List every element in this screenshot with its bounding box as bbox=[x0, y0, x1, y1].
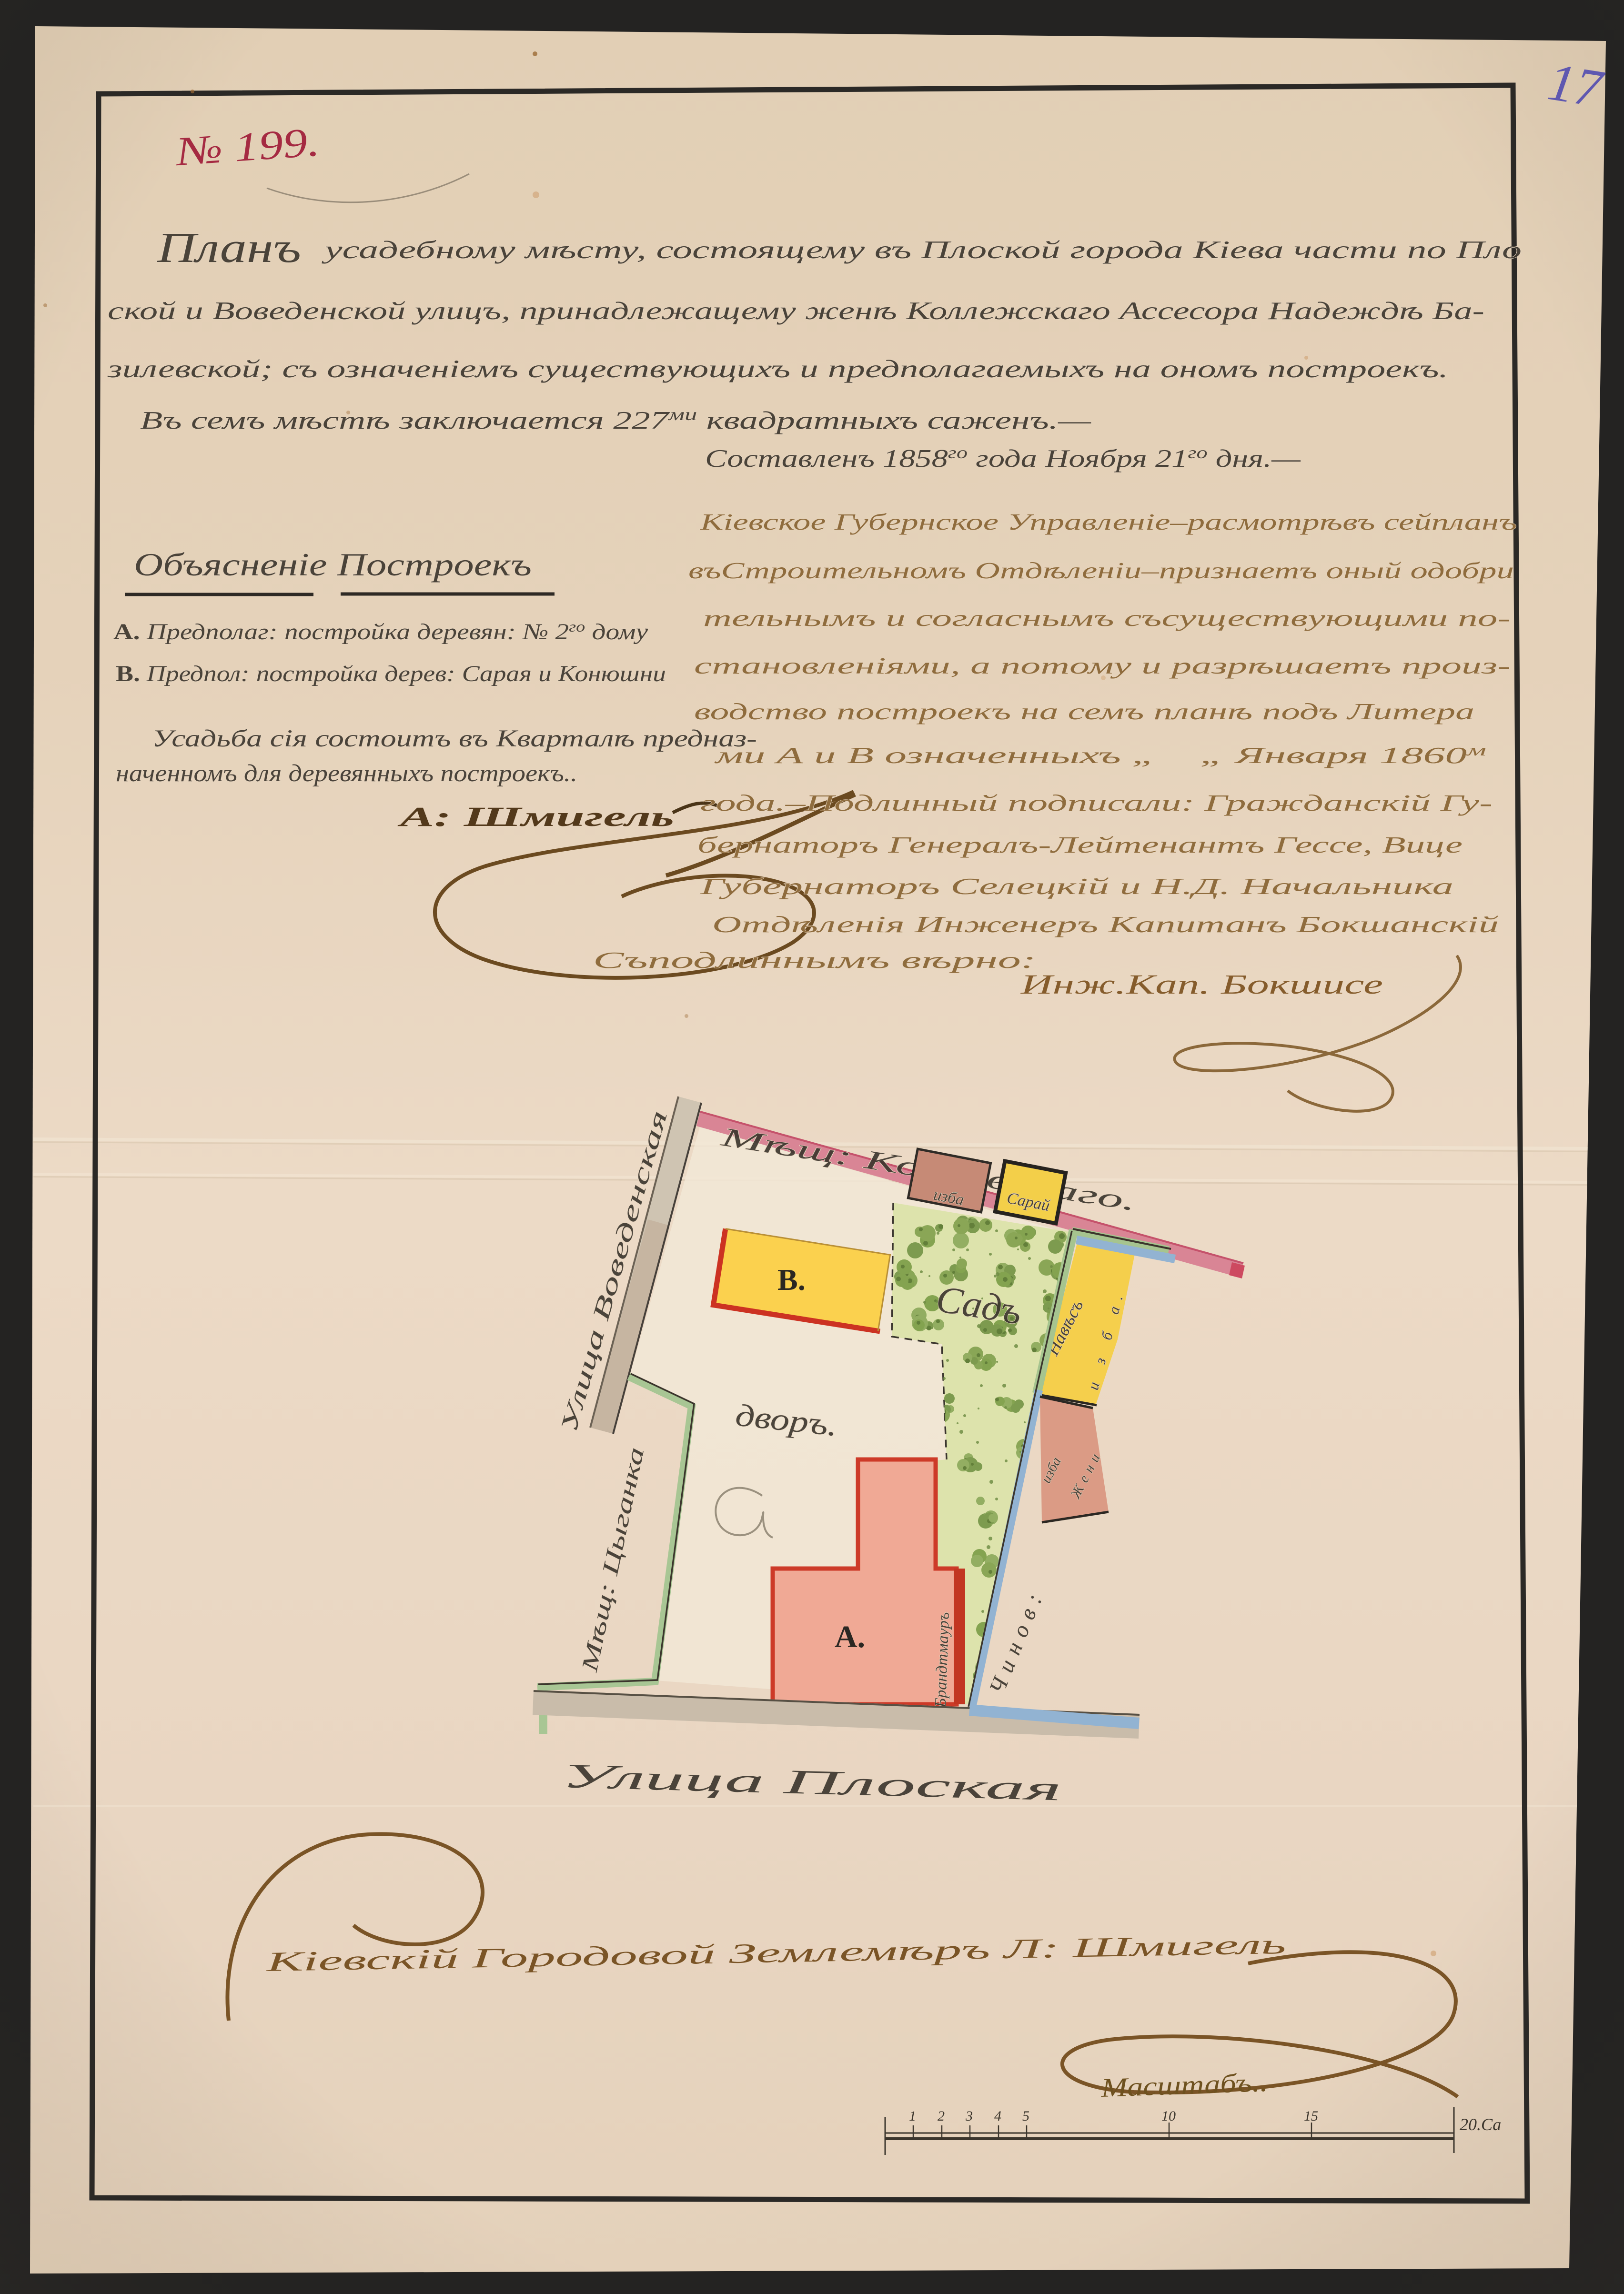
svg-text:зилевской; съ означеніемъ суще: зилевской; съ означеніемъ существующихъ … bbox=[107, 355, 1448, 383]
svg-text:усадебному мѣсту, состоящему в: усадебному мѣсту, состоящему въ Плоской … bbox=[321, 236, 1522, 264]
svg-text:Кіевское Губернское Управленіе: Кіевское Губернское Управленіе–расмотрѣв… bbox=[700, 509, 1517, 535]
svg-text:Составленъ 1858го года Ноября: Составленъ 1858го года Ноября 21го дня.— bbox=[705, 443, 1301, 473]
svg-text:Съподлиннымъ вѣрно:: Съподлиннымъ вѣрно: bbox=[593, 947, 1036, 973]
svg-text:1: 1 bbox=[909, 2108, 916, 2124]
svg-text:становленіями, а потому и разр: становленіями, а потому и разрѣшаетъ про… bbox=[694, 653, 1511, 679]
svg-text:въСтроительномъ Отдѣленіи–приз: въСтроительномъ Отдѣленіи–признаетъ оный… bbox=[688, 557, 1514, 584]
svg-text:5: 5 bbox=[1022, 2108, 1029, 2124]
svg-text:ской и Воведенской улицъ, прин: ской и Воведенской улицъ, принадлежащему… bbox=[108, 297, 1484, 325]
svg-text:наченномъ для деревянныхъ пост: наченномъ для деревянныхъ построекъ.. bbox=[116, 760, 577, 787]
svg-text:Усадьба сія состоитъ въ Кварта: Усадьба сія состоитъ въ Кварталѣ предназ… bbox=[152, 725, 757, 752]
svg-text:А.: А. bbox=[835, 1620, 865, 1654]
svg-text:4: 4 bbox=[994, 2108, 1001, 2124]
svg-text:В. Предпол: постройка дерев: С: В. Предпол: постройка дерев: Сарая и Кон… bbox=[116, 661, 666, 686]
svg-text:3: 3 bbox=[965, 2108, 973, 2124]
svg-text:Инж.Кап. Бокшисе: Инж.Кап. Бокшисе bbox=[1020, 969, 1383, 1000]
svg-text:Отдѣленія Инженеръ Капитанъ Бо: Отдѣленія Инженеръ Капитанъ Бокшанскій bbox=[712, 911, 1499, 937]
svg-text:А: Шмигель: А: Шмигель bbox=[397, 801, 674, 832]
svg-text:года.–Подлинный подписали: Гра: года.–Подлинный подписали: Гражданскій Г… bbox=[700, 790, 1493, 816]
svg-text:водство построекъ на семъ план: водство построекъ на семъ планѣ подъ Лит… bbox=[694, 698, 1474, 724]
svg-text:Масштабъ..: Масштабъ.. bbox=[1100, 2068, 1268, 2103]
svg-text:10: 10 bbox=[1161, 2108, 1176, 2124]
svg-text:15: 15 bbox=[1304, 2108, 1318, 2124]
svg-text:Брандтмауръ: Брандтмауръ bbox=[932, 1612, 953, 1708]
svg-text:ми А и В означенныхъ „ „ Ян: ми А и В означенныхъ „ „ Января 1860м bbox=[714, 742, 1486, 768]
svg-text:2: 2 bbox=[938, 2108, 945, 2124]
svg-text:Объясненіе Построекъ: Объясненіе Построекъ bbox=[134, 546, 532, 583]
svg-text:А. Предполаг: постройка деревя: А. Предполаг: постройка деревян: № 2го д… bbox=[113, 618, 648, 644]
svg-text:20.Са: 20.Са bbox=[1460, 2115, 1501, 2134]
svg-text:В.: В. bbox=[777, 1263, 806, 1297]
svg-text:тельнымъ и согласнымъ съсущест: тельнымъ и согласнымъ съсуществующими по… bbox=[703, 605, 1511, 631]
svg-text:Планъ: Планъ bbox=[157, 224, 301, 272]
svg-text:Губернаторъ Селецкій и Н.Д. На: Губернаторъ Селецкій и Н.Д. Начальника bbox=[699, 873, 1453, 899]
svg-text:бернаторъ Генералъ-Лейтенантъ: бернаторъ Генералъ-Лейтенантъ Гессе, Виц… bbox=[697, 832, 1463, 858]
svg-text:Въ семъ мѣстѣ заключается 227м: Въ семъ мѣстѣ заключается 227ми квадратн… bbox=[140, 405, 1091, 434]
